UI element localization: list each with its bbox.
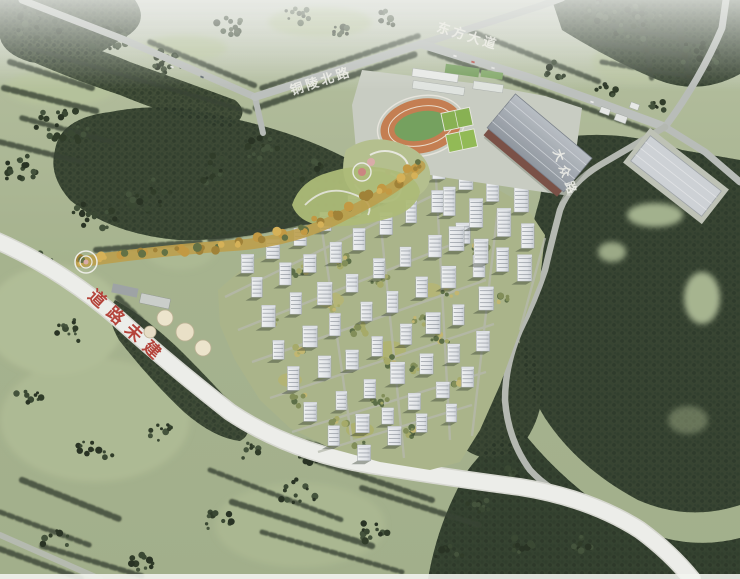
aerial-scene: 铜陵北路 东方大道 大众路 道路未建 [0,0,740,579]
atmospheric-haze [0,0,740,579]
masterplan-rendering: 铜陵北路 东方大道 大众路 道路未建 [0,0,740,579]
